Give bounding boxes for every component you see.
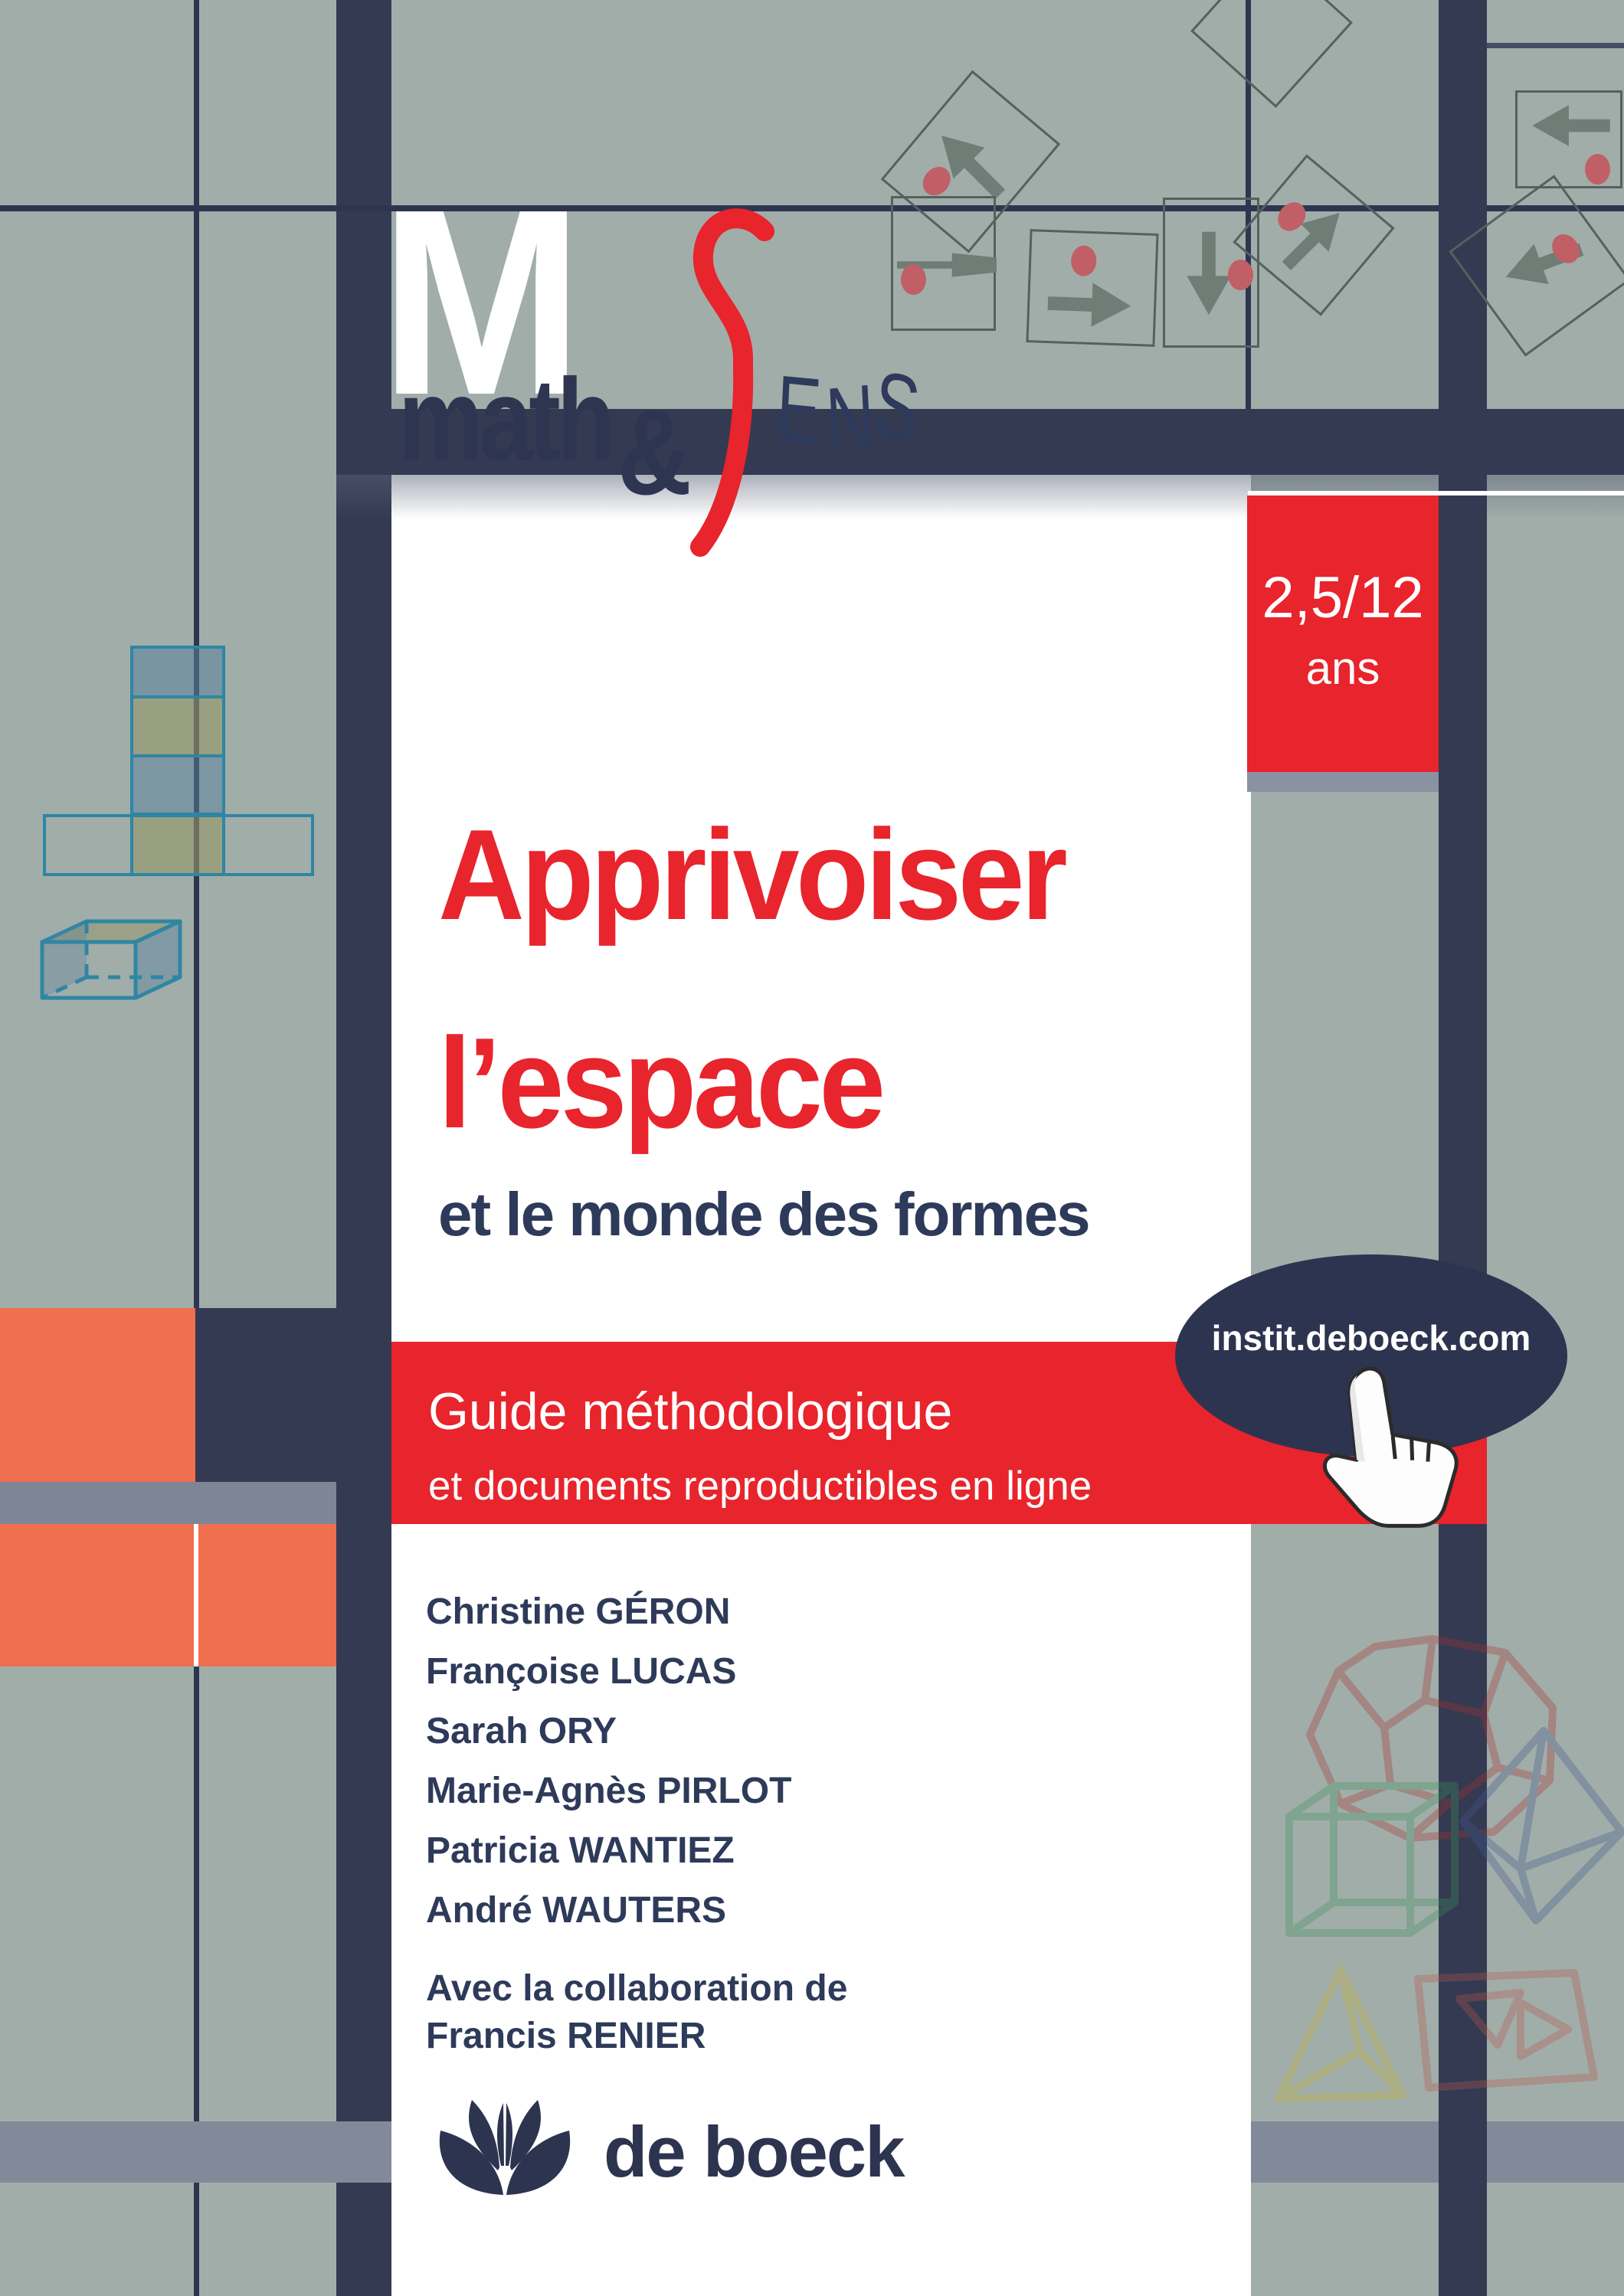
website-url[interactable]: instit.deboeck.com [1175, 1317, 1567, 1359]
age-badge: 2,5/12 ans [1247, 496, 1439, 772]
gray-band-bottom-right [1251, 2121, 1624, 2183]
collaborator-name: Francis RENIER [426, 2013, 847, 2060]
red-dot [901, 264, 926, 295]
arrow-icon [1525, 103, 1616, 148]
author-name: Sarah ORY [426, 1702, 791, 1761]
collaboration-block: Avec la collaboration de Francis RENIER [426, 1965, 847, 2060]
book-cover: M math & E N S 2,5/12 [0, 0, 1624, 2296]
navy-block [195, 1308, 391, 1482]
red-dot [1228, 260, 1253, 290]
arrow-tile-partial [1190, 0, 1353, 108]
title-line-2: l’espace [438, 1019, 882, 1147]
red-dot [1585, 154, 1610, 185]
orange-block-2 [0, 1524, 336, 1666]
arrow-tile-right [1026, 229, 1158, 347]
dodecahedron [1310, 1639, 1553, 1838]
author-name: Marie-Agnès PIRLOT [426, 1761, 791, 1821]
age-range: 2,5/12 [1247, 564, 1439, 631]
age-unit: ans [1247, 642, 1439, 695]
logo-script-s-icon [666, 207, 789, 567]
lotus-logo-icon [431, 2095, 579, 2196]
arrow-icon [1185, 227, 1233, 321]
author-name: André WAUTERS [426, 1881, 791, 1941]
vertical-line-left [194, 0, 199, 2296]
gray-strip-below-badge [1247, 772, 1439, 792]
arrow-icon [1492, 227, 1593, 301]
octahedron [1463, 1731, 1622, 1921]
arrow-icon [1043, 280, 1138, 330]
author-name: Françoise LUCAS [426, 1642, 791, 1702]
tetrahedron [1279, 1970, 1403, 2098]
cube-frame [1289, 1786, 1455, 1933]
author-name: Christine GÉRON [426, 1582, 791, 1642]
horizontal-line-top [0, 205, 1624, 211]
arrow-tile-down [1163, 198, 1259, 348]
pyramid-net [1418, 1973, 1594, 2088]
red-dot [1071, 245, 1097, 276]
title-subtitle: et le monde des formes [438, 1179, 1089, 1250]
author-name: Patricia WANTIEZ [426, 1821, 791, 1881]
polyhedra-photo [1268, 1616, 1624, 2114]
gray-band-left [0, 1482, 336, 1524]
title-line-1: Apprivoiser [438, 810, 1064, 939]
cube-net-icon [31, 636, 329, 1015]
authors-block: Christine GÉRON Françoise LUCAS Sarah OR… [426, 1582, 791, 1941]
hand-cursor-icon [1298, 1354, 1477, 1546]
arrow-tile-left [1515, 90, 1622, 188]
logo-letter-e: E [774, 361, 823, 458]
logo-word-math: math [398, 361, 611, 478]
white-line-on-orange [194, 1524, 198, 1666]
publisher-name: de boeck [604, 2111, 904, 2193]
horizontal-line-topright [1487, 43, 1624, 48]
orange-block-1 [0, 1308, 195, 1482]
gray-band-bottom-left [0, 2121, 391, 2183]
collaboration-intro: Avec la collaboration de [426, 1965, 847, 2013]
arrow-tile-up [891, 196, 996, 331]
